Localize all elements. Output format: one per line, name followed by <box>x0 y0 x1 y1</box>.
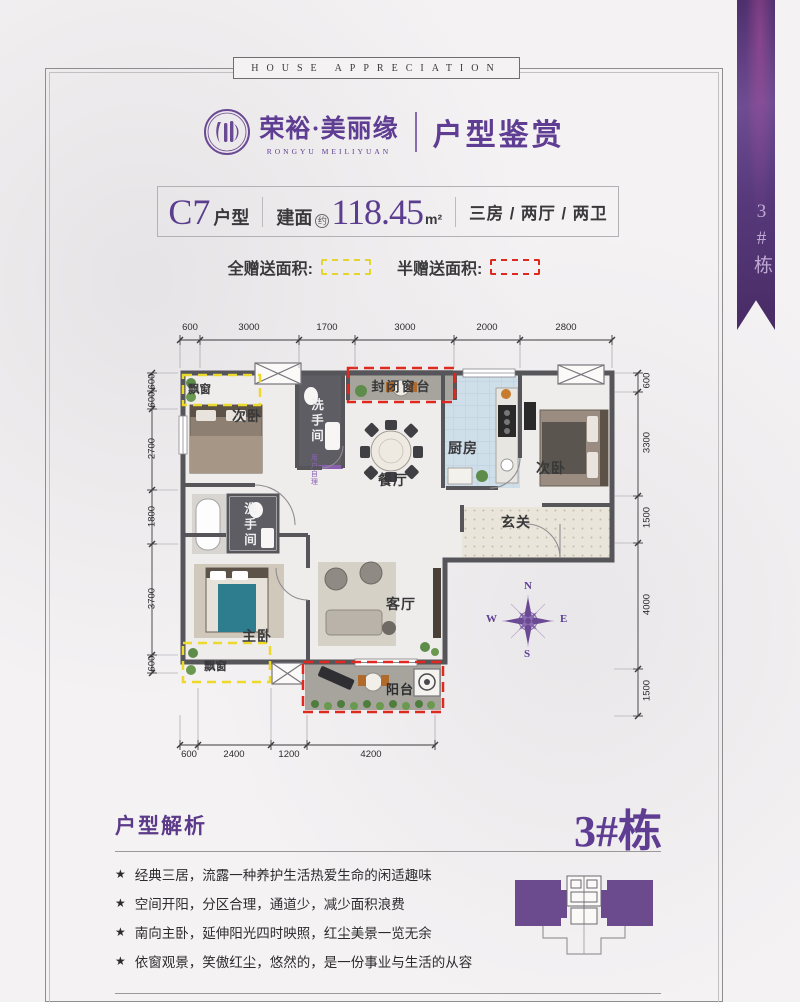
dim-label: 3000 <box>229 322 269 333</box>
bathtub <box>196 499 220 550</box>
dim-label: 600 <box>147 380 158 420</box>
compass-north: N <box>524 580 532 592</box>
room-label-bedroom-right: 次卧 <box>536 458 566 478</box>
dim-label: 1500 <box>642 671 653 711</box>
room-label-dining: 餐厅 <box>378 470 408 490</box>
brand-name-en: RONGYU MEILIYUAN <box>267 147 391 156</box>
logo-row: 荣裕·美丽缘 RONGYU MEILIYUAN 户型鉴赏 <box>45 102 723 162</box>
brand-text-block: 荣裕·美丽缘 RONGYU MEILIYUAN <box>259 109 398 156</box>
room-label-bay-window-top: 飘窗 <box>188 381 211 397</box>
top-banner: HOUSE APPRECIATION <box>233 57 520 79</box>
room-label-bay-window-bottom: 飘窗 <box>204 658 227 674</box>
dim-label: 4000 <box>642 585 653 625</box>
gift-area-legend: 全赠送面积: 半赠送面积: <box>45 255 723 279</box>
unit-area: 建面 约 118.45 m² <box>276 194 442 230</box>
analysis-title: 户型解析 <box>115 810 207 840</box>
analysis-point-text: 依窗观景，笑傲红尘，悠然的，是一份事业与生活的从容 <box>135 951 473 971</box>
full-gift-legend: 全赠送面积: <box>228 255 371 279</box>
dim-label: 600 <box>170 322 210 333</box>
dim-label: 2400 <box>214 749 254 760</box>
dim-label: 1800 <box>147 497 158 537</box>
room-label-bedroom-left: 次卧 <box>232 406 262 426</box>
room-label-foyer: 玄关 <box>501 512 531 532</box>
dim-label: 600 <box>642 361 653 401</box>
analysis-points: ★经典三居，流露一种养护生活热爱生命的闲适趣味 ★空间开阳，分区合理，通道少，减… <box>115 859 472 975</box>
building-label: 3#栋 <box>420 795 662 859</box>
area-value: 118.45 <box>331 194 423 230</box>
half-gift-swatch <box>490 259 540 275</box>
room-label-living: 客厅 <box>386 594 416 614</box>
section-title: 户型鉴赏 <box>433 110 565 154</box>
compass-east: E <box>560 613 567 625</box>
star-bullet-icon: ★ <box>115 925 126 939</box>
banner-text: HOUSE APPRECIATION <box>251 63 501 74</box>
analysis-point: ★依窗观景，笑傲红尘，悠然的，是一份事业与生活的从容 <box>115 946 472 975</box>
star-bullet-icon: ★ <box>115 954 126 968</box>
divider-line <box>115 993 661 994</box>
washing-machine <box>414 669 440 696</box>
divider <box>455 197 456 227</box>
analysis-point-text: 经典三居，流露一种养护生活热爱生命的闲适趣味 <box>135 864 432 884</box>
full-gift-label: 全赠送面积: <box>228 255 313 279</box>
foyer-floor-dots <box>462 507 610 558</box>
room-label-bathroom-top: 洗手间 <box>307 398 326 445</box>
dim-label: 600 <box>147 644 158 684</box>
unit-info-bar: C7 户型 建面 约 118.45 m² 三房 / 两厅 / 两卫 <box>157 186 619 237</box>
brochure-page: HOUSE APPRECIATION 3#栋 荣裕·美丽缘 RONGYU MEI… <box>0 0 800 1002</box>
brand-emblem-icon <box>203 108 251 156</box>
half-gift-label: 半赠送面积: <box>397 255 482 279</box>
dim-label: 2800 <box>546 322 586 333</box>
compass-west: W <box>486 613 497 625</box>
divider-line <box>115 851 661 852</box>
star-bullet-icon: ★ <box>115 896 126 910</box>
dim-label: 2000 <box>467 322 507 333</box>
compass-south: S <box>524 648 530 660</box>
floor-plan: 飘窗 次卧 洗手间 封闭窗台 餐厅 厨房 次卧 玄关 洗手间 主卧 客厅 阳台 … <box>130 310 660 775</box>
dim-label: 3000 <box>385 322 425 333</box>
room-config: 三房 / 两厅 / 两卫 <box>469 200 608 224</box>
area-prefix: 建面 <box>276 204 312 230</box>
room-label-kitchen: 厨房 <box>448 438 478 458</box>
balcony-table <box>364 673 382 691</box>
dim-label: 1200 <box>269 749 309 760</box>
dim-label: 600 <box>169 749 209 760</box>
building-key-plan-icon <box>505 868 663 964</box>
analysis-point-text: 南向主卧，延伸阳光四时映照，红尘美景一览无余 <box>135 922 432 942</box>
plan-note: 用户自理 <box>309 454 317 486</box>
unit-code: C7 <box>168 194 210 230</box>
area-approx-circle: 约 <box>315 214 329 228</box>
analysis-point: ★南向主卧，延伸阳光四时映照，红尘美景一览无余 <box>115 917 472 946</box>
area-unit: m² <box>425 211 442 227</box>
dim-label: 2700 <box>147 429 158 469</box>
brand-name-cn: 荣裕·美丽缘 <box>259 109 398 145</box>
room-label-balcony: 阳台 <box>386 679 414 698</box>
logo-divider <box>415 112 417 152</box>
divider <box>262 197 263 227</box>
room-label-bathroom-left: 洗手间 <box>240 502 259 549</box>
unit-name: C7 户型 <box>168 194 249 230</box>
full-gift-swatch <box>321 259 371 275</box>
half-gift-legend: 半赠送面积: <box>397 255 540 279</box>
dim-label: 3300 <box>642 423 653 463</box>
star-bullet-icon: ★ <box>115 867 126 881</box>
room-label-master-bedroom: 主卧 <box>242 626 272 646</box>
unit-suffix: 户型 <box>213 204 249 230</box>
compass-rose <box>502 595 554 647</box>
dim-label: 4200 <box>351 749 391 760</box>
room-label-enclosed-sill: 封闭窗台 <box>350 376 453 395</box>
analysis-point: ★空间开阳，分区合理，通道少，减少面积浪费 <box>115 888 472 917</box>
analysis-point-text: 空间开阳，分区合理，通道少，减少面积浪费 <box>135 893 405 913</box>
dim-label: 1500 <box>642 498 653 538</box>
dim-label: 1700 <box>307 322 347 333</box>
analysis-point: ★经典三居，流露一种养护生活热爱生命的闲适趣味 <box>115 859 472 888</box>
dim-label: 3700 <box>147 579 158 619</box>
ribbon-label: 3#栋 <box>737 180 775 300</box>
